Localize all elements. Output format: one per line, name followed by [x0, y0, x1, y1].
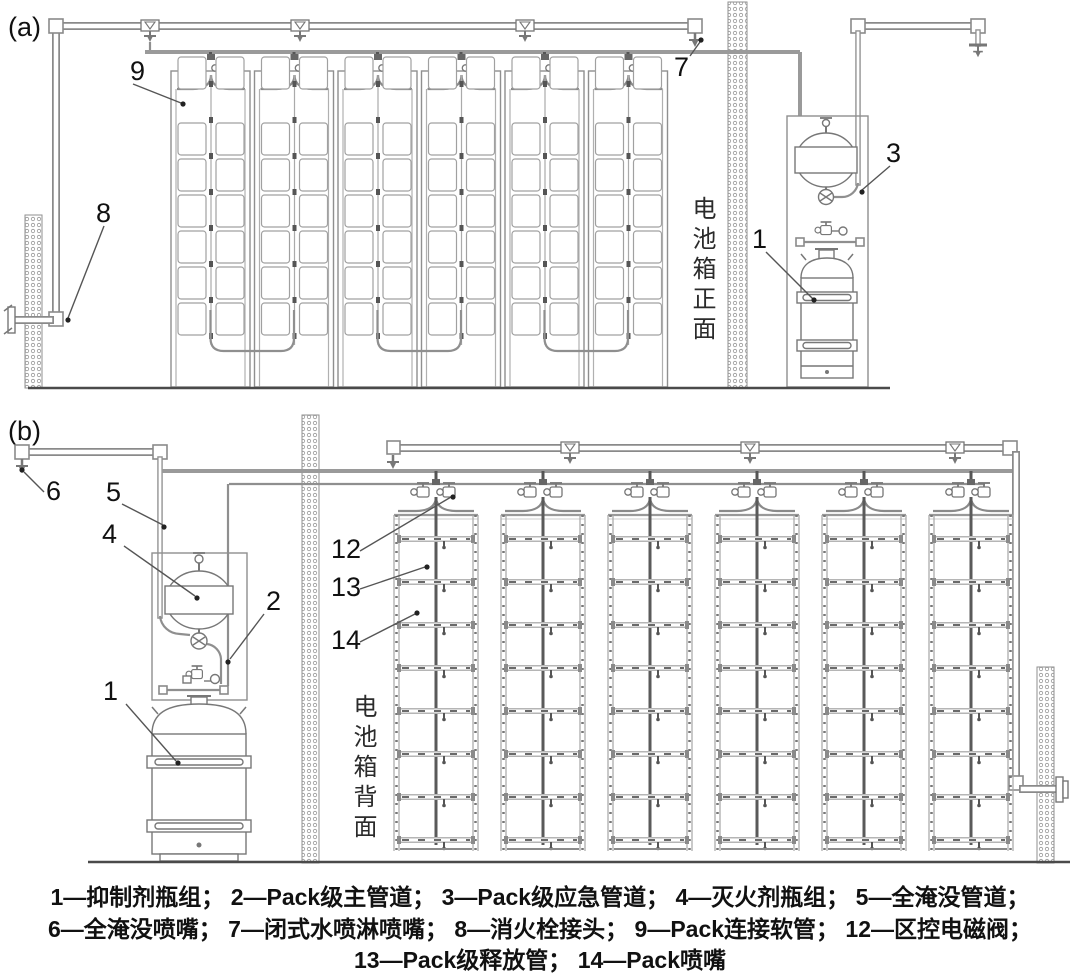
figure-canvas: (a) — [0, 0, 1080, 978]
rack-column — [608, 479, 692, 851]
pipe-elbow — [15, 445, 29, 459]
side-label-front: 电池箱正面 — [684, 196, 719, 346]
callout-6: 6 — [46, 476, 61, 506]
battery-rack-front — [171, 54, 668, 387]
rack-column — [715, 479, 799, 851]
wall-left-hatched — [25, 215, 42, 388]
tank-valve — [819, 187, 834, 205]
battery-rack-back — [394, 471, 1013, 851]
agent-tank-horizontal — [165, 553, 233, 629]
panel-a: (a) — [4, 2, 987, 388]
cylinder-cabinet — [787, 19, 987, 387]
rack-column — [822, 479, 906, 851]
rack-column — [394, 479, 478, 851]
legend-line-3: 13—Pack级释放管； 14—Pack喷嘴 — [0, 945, 1080, 977]
fire-suppression-diagram: (a) — [0, 0, 1080, 978]
wall-right-hatched — [1037, 667, 1054, 863]
hydrant-coupling-icon — [1056, 777, 1063, 802]
pressure-gauge-icon — [211, 675, 220, 684]
manifold — [796, 222, 864, 246]
sprinkler-icon — [141, 20, 159, 42]
callout-5: 5 — [106, 477, 121, 507]
pipe-elbow — [688, 19, 702, 33]
sprinkler-icon — [291, 20, 309, 42]
callout-13: 13 — [331, 572, 361, 602]
side-label-back: 电池箱背面 — [345, 694, 380, 844]
hydrant-coupling-icon — [1063, 781, 1068, 798]
wall-mid-hatched — [302, 415, 319, 863]
callout-1: 1 — [752, 224, 767, 254]
flooding-nozzle-icon — [741, 442, 759, 464]
callout-2: 2 — [266, 586, 281, 616]
suppressant-cylinder — [797, 249, 857, 378]
rack-column — [501, 479, 585, 851]
suppressant-cylinder — [147, 696, 251, 861]
panel-b-tag: (b) — [8, 416, 41, 446]
callout-3: 3 — [886, 138, 901, 168]
callout-1: 1 — [103, 676, 118, 706]
pipe-elbow — [387, 441, 400, 454]
legend: 1—抑制剂瓶组； 2—Pack级主管道； 3—Pack级应急管道； 4—灭火剂瓶… — [0, 882, 1080, 977]
flooding-pipe-overhead — [387, 441, 1068, 802]
legend-line-2: 6—全淹没喷嘴； 7—闭式水喷淋喷嘴； 8—消火栓接头； 9—Pack连接软管；… — [0, 914, 1080, 946]
pipe-elbow — [49, 19, 63, 33]
manifold — [159, 666, 228, 694]
agent-tank-horizontal — [795, 118, 857, 187]
legend-line-1: 1—抑制剂瓶组； 2—Pack级主管道； 3—Pack级应急管道； 4—灭火剂瓶… — [0, 882, 1080, 914]
pressure-gauge-icon — [839, 227, 847, 235]
flooding-nozzle-icon — [946, 442, 964, 464]
callout-7: 7 — [674, 52, 689, 82]
sprinkler-icon — [516, 20, 534, 42]
flooding-nozzle-icon — [561, 442, 579, 464]
cylinder-valve-icon — [815, 222, 831, 235]
wall-right-hatched — [728, 2, 747, 388]
callout-9: 9 — [130, 56, 145, 86]
nozzle-icon — [973, 46, 983, 57]
flooding-nozzle-icon — [387, 455, 399, 469]
rack-column — [929, 479, 1013, 851]
callout-8: 8 — [96, 198, 111, 228]
panel-a-tag: (a) — [8, 12, 41, 42]
panel-b: (b) — [8, 415, 1070, 863]
callout-14: 14 — [331, 625, 361, 655]
callout-4: 4 — [102, 519, 117, 549]
callout-12: 12 — [331, 534, 361, 564]
